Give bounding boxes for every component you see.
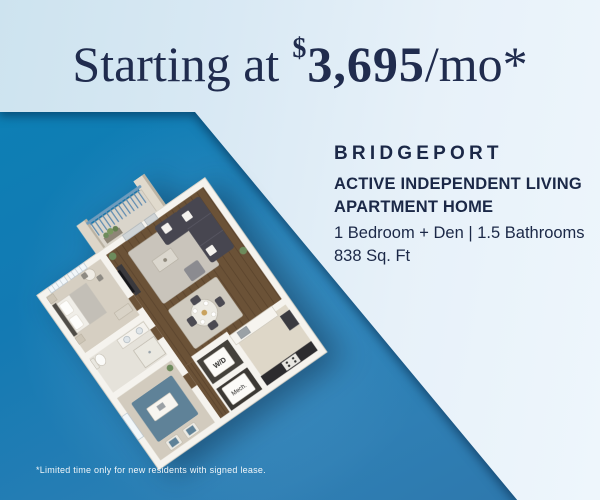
- disclaimer-text: *Limited time only for new residents wit…: [36, 465, 266, 475]
- unit-name: BRIDGEPORT: [334, 143, 585, 165]
- unit-layout: 1 Bedroom + Den | 1.5 Bathrooms: [334, 222, 585, 245]
- price-per-month: /mo*: [425, 35, 528, 93]
- unit-area: 838 Sq. Ft: [334, 245, 585, 268]
- ad-banner: Starting at$3,695/mo* BRIDGEPORT ACTIVE …: [0, 0, 600, 500]
- program-line-2: APARTMENT HOME: [334, 196, 585, 219]
- price-amount: 3,695: [307, 35, 425, 93]
- unit-info: BRIDGEPORT ACTIVE INDEPENDENT LIVING APA…: [334, 143, 585, 268]
- headline-prefix: Starting at: [72, 35, 279, 93]
- currency-symbol: $: [292, 33, 306, 65]
- program-line-1: ACTIVE INDEPENDENT LIVING: [334, 173, 585, 196]
- price-headline: Starting at$3,695/mo*: [0, 0, 600, 120]
